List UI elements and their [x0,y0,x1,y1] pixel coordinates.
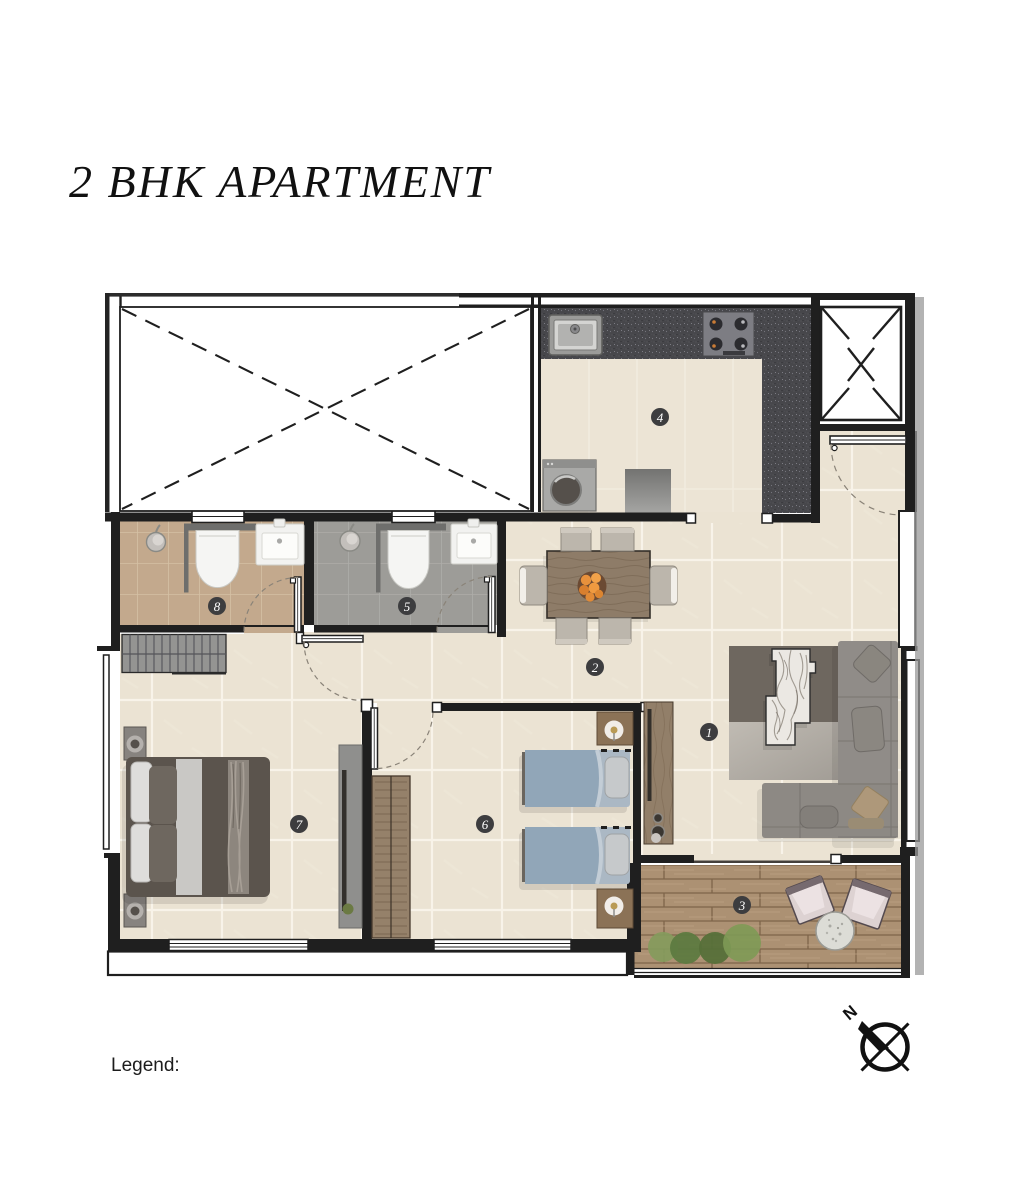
svg-text:7: 7 [296,817,303,832]
svg-text:1: 1 [706,725,713,740]
svg-text:2 BHK APARTMENT: 2 BHK APARTMENT [69,156,492,207]
svg-text:6: 6 [482,817,489,832]
svg-text:5: 5 [404,599,411,614]
svg-text:Legend:: Legend: [111,1055,180,1076]
svg-text:4: 4 [657,410,664,425]
svg-text:2: 2 [592,660,599,675]
svg-text:8: 8 [214,599,221,614]
svg-text:3: 3 [738,898,746,913]
